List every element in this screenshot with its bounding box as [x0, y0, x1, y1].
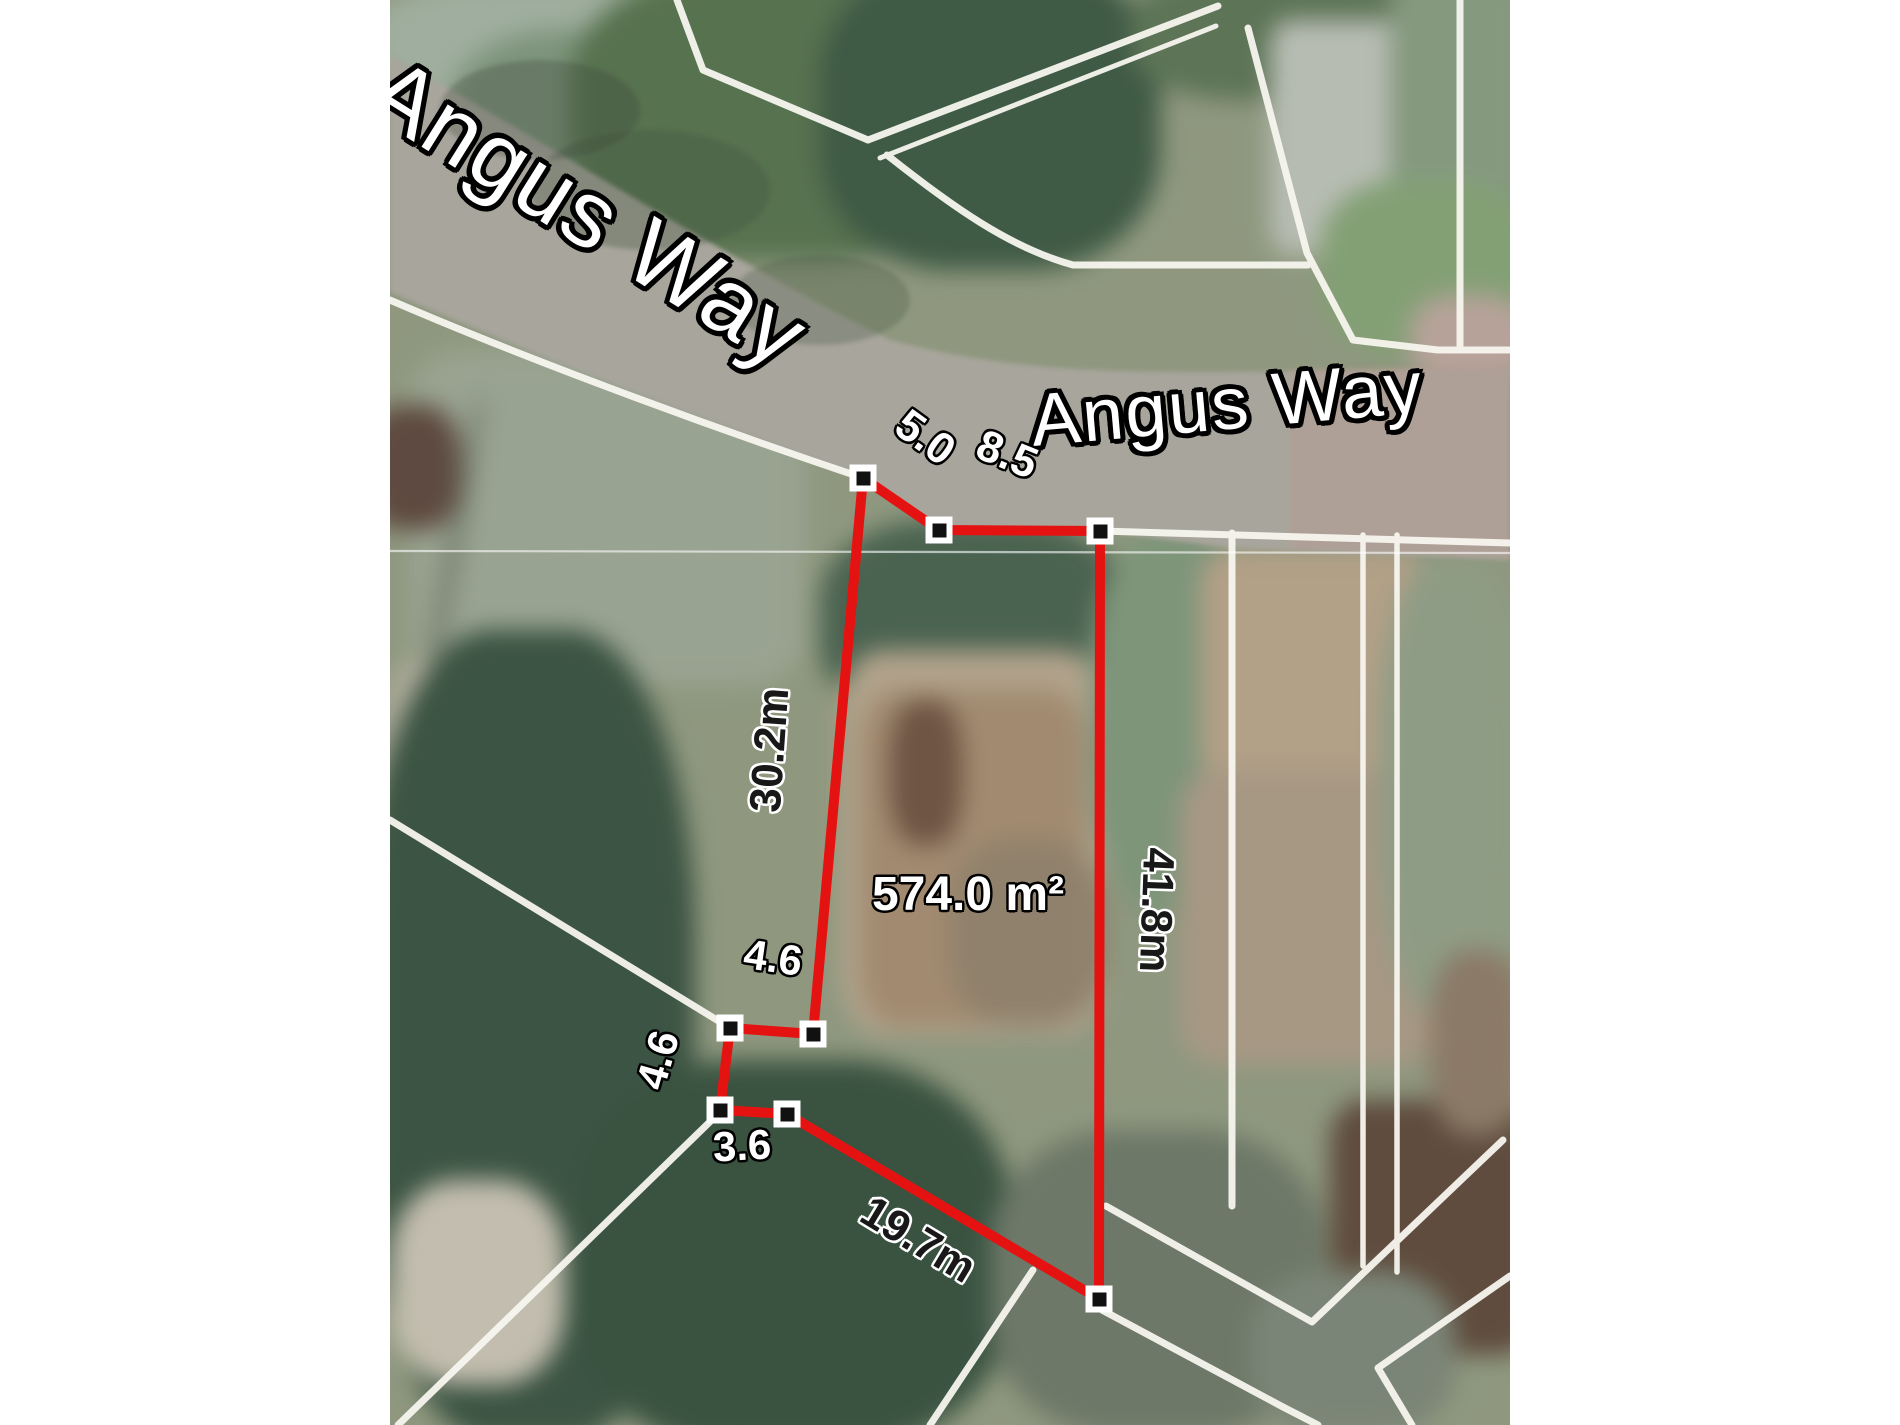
lot-area-label: 574.0 m² [872, 871, 1064, 919]
measurement-label: 3.6 [712, 1124, 773, 1169]
measurement-label: 19.7m [853, 1189, 983, 1291]
street-name-label: Angus Way [390, 42, 823, 384]
labels-layer: Angus WayAngus Way5.08.530.2m41.8m4.64.6… [390, 0, 1510, 1425]
screenshot-stage: Angus WayAngus Way5.08.530.2m41.8m4.64.6… [0, 0, 1900, 1425]
measurement-label: 41.8m [1132, 847, 1180, 973]
measurement-label: 4.6 [630, 1026, 686, 1094]
right-margin [1510, 0, 1900, 1425]
measurement-label: 4.6 [741, 933, 805, 983]
measurement-label: 30.2m [744, 686, 797, 814]
aerial-map: Angus WayAngus Way5.08.530.2m41.8m4.64.6… [390, 0, 1510, 1425]
left-margin [0, 0, 390, 1425]
measurement-label: 5.0 [887, 402, 962, 474]
street-name-label: Angus Way [1028, 350, 1427, 458]
